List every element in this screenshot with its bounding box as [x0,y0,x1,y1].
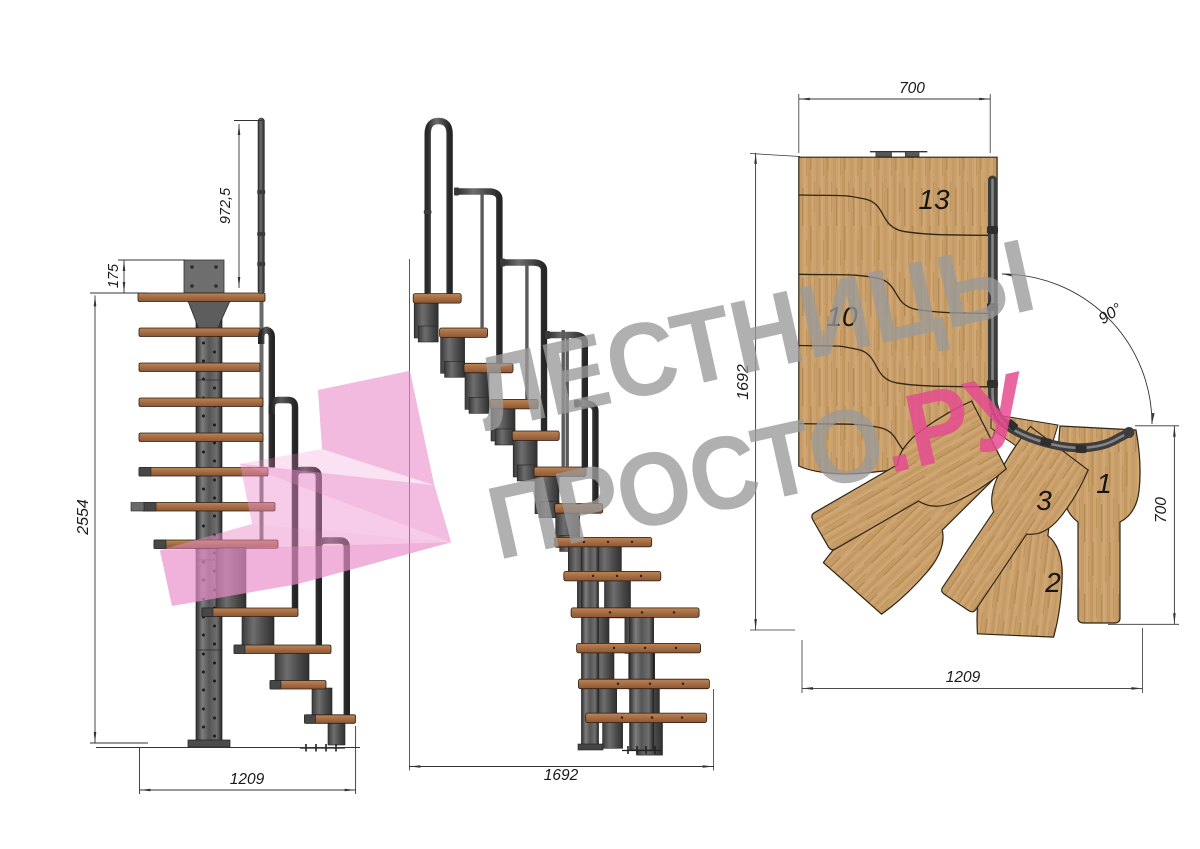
svg-text:700: 700 [899,80,925,97]
svg-text:3: 3 [1036,485,1052,516]
svg-text:1692: 1692 [544,767,579,784]
svg-text:1: 1 [1096,468,1112,499]
svg-text:700: 700 [1153,497,1170,523]
svg-text:1209: 1209 [946,669,981,686]
svg-text:972,5: 972,5 [218,187,234,224]
svg-text:13: 13 [918,184,950,215]
svg-text:2554: 2554 [75,499,92,536]
svg-text:175: 175 [106,263,122,288]
svg-text:2: 2 [1044,567,1061,598]
svg-text:1209: 1209 [230,771,265,788]
